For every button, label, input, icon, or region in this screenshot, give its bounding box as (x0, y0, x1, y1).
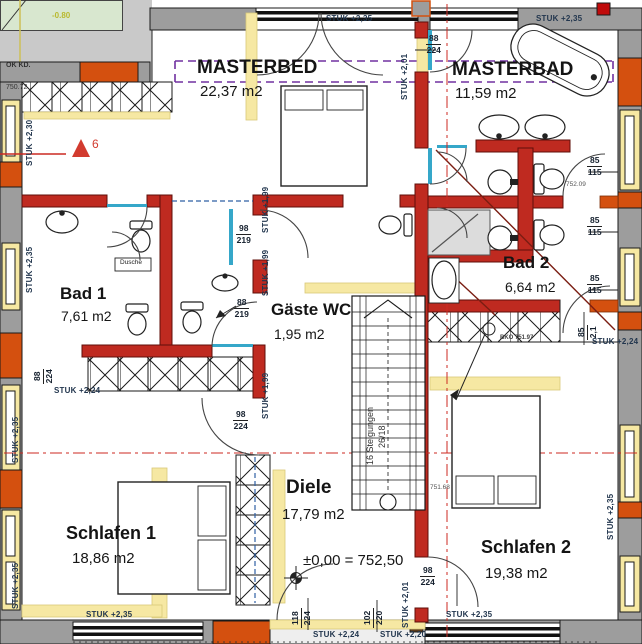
dim-door-masterbad-denominator: 224 (427, 45, 441, 55)
level-zero: ±0,00 = 752,50 (303, 553, 403, 568)
dim-wc-88-219-denominator: 219 (235, 309, 249, 319)
stuk-bottom-220: STUK +2,20 (380, 631, 426, 639)
dim-left-88-224-denominator: 224 (44, 369, 54, 383)
stuk-bottom-left: STUK +2,35 (86, 611, 132, 619)
dim-102-220-denominator: 220 (374, 611, 384, 625)
dim-s2-98-224-denominator: 224 (421, 577, 435, 587)
room-label-masterbad: MASTERBAD (452, 60, 573, 79)
dim-right-b: 85115 (587, 216, 602, 237)
room-label-bad1: Bad 1 (60, 285, 106, 302)
dim-s2-98-224: 98224 (420, 566, 435, 587)
stuk-top-right: STUK +2,35 (536, 15, 582, 23)
stuk-right-schlafen2: STUK +2,35 (607, 494, 615, 540)
room-label-diele: Diele (286, 478, 331, 497)
dim-right-c: 85115 (587, 274, 602, 295)
dim-118-224: 118224 (291, 608, 312, 628)
dim-wc-88-219-numerator: 88 (234, 298, 249, 309)
axis-number: 6 (92, 138, 99, 150)
stuk-bad1-bottom: STUK +2,24 (54, 387, 100, 395)
dim-wc-98-219: 98219 (236, 224, 251, 245)
room-label-bad2: Bad 2 (503, 254, 549, 271)
area-label-masterbed: 22,37 m2 (200, 84, 263, 99)
room-label-schlafen2: Schlafen 2 (481, 538, 571, 556)
dim-102-220: 102220 (363, 608, 384, 628)
dim-door-masterbad: 88224 (426, 34, 441, 55)
area-label-schlafen1: 18,86 m2 (72, 551, 135, 566)
dim-door-masterbad-numerator: 88 (426, 34, 441, 45)
stuk-bottom-224: STUK +2,24 (313, 631, 359, 639)
labels-layer: OK KD.750.72-0.806MASTERBED22,37 m2MASTE… (0, 0, 642, 644)
dim-right-b-denominator: 115 (588, 227, 602, 237)
stuk-left-low-b: STUK +2,35 (12, 563, 20, 609)
dim-left-88-224: 88224 (33, 369, 54, 384)
stuk-left-mid: STUK +2,35 (26, 247, 34, 293)
level-minus-080: -0.80 (52, 12, 70, 20)
dim-right-c-numerator: 85 (587, 274, 602, 285)
dusche-label: Dusche (120, 260, 142, 267)
dim-left-88-224-numerator: 88 (33, 369, 44, 384)
dim-wc-88-219: 88219 (234, 298, 249, 319)
dim-diele-98-224-denominator: 224 (234, 421, 248, 431)
area-label-bad2: 6,64 m2 (505, 280, 556, 294)
dim-right-a-numerator: 85 (587, 156, 602, 167)
area-label-masterbad: 11,59 m2 (455, 86, 516, 101)
stuk-top-center: STUK +2,35 (326, 15, 372, 23)
level-752-09: 752.09 (566, 182, 586, 189)
stairs-note-line1: 16 Steigungen (366, 407, 375, 465)
ok-kd-label: OK KD. (6, 62, 31, 69)
dim-diele-98-224: 98224 (233, 410, 248, 431)
dim-right-b-numerator: 85 (587, 216, 602, 227)
room-label-schlafen1: Schlafen 1 (66, 524, 156, 542)
room-label-gaeste-wc: Gäste WC (271, 301, 351, 318)
stuk-gwc-b: STUK +1,99 (262, 250, 270, 296)
stuk-spine-top: STUK +2,01 (401, 54, 409, 100)
level-top-left: 750.72 (6, 84, 27, 91)
dim-door-85-numerator: 85 (577, 325, 588, 340)
dim-118-224-denominator: 224 (302, 611, 312, 625)
dim-118-224-numerator: 118 (291, 608, 302, 628)
dim-diele-98-224-numerator: 98 (233, 410, 248, 421)
dim-wc-98-219-denominator: 219 (237, 235, 251, 245)
dim-wc-98-219-numerator: 98 (236, 224, 251, 235)
dim-102-220-numerator: 102 (363, 608, 374, 628)
dim-right-c-denominator: 115 (588, 285, 602, 295)
dim-right-a: 85115 (587, 156, 602, 177)
area-label-schlafen2: 19,38 m2 (485, 566, 548, 581)
dim-right-a-denominator: 115 (588, 167, 602, 177)
stairs-note-line2: 26/18 (378, 425, 387, 448)
room-label-masterbed: MASTERBED (197, 58, 317, 77)
area-label-bad1: 7,61 m2 (61, 309, 112, 323)
stuk-left-low-a: STUK +2,35 (12, 417, 20, 463)
stuk-gwc-c: STUK +1,99 (262, 373, 270, 419)
floor-plan: OK KD.750.72-0.806MASTERBED22,37 m2MASTE… (0, 0, 642, 644)
stuk-s2-bottom: STUK +2,01 (402, 582, 410, 628)
dim-s2-98-224-numerator: 98 (420, 566, 435, 577)
stuk-bottom-center: STUK +2,35 (446, 611, 492, 619)
stuk-right-224: STUK +2,24 (592, 338, 638, 346)
stuk-left-upper: STUK +2,30 (26, 120, 34, 166)
area-label-gaeste-wc: 1,95 m2 (274, 327, 325, 341)
level-751-68: 751.68 (430, 485, 450, 492)
stuk-gwc-a: STUK +1,99 (262, 187, 270, 233)
bko-level: BKO 751.97 (500, 335, 533, 341)
area-label-diele: 17,79 m2 (282, 507, 345, 522)
